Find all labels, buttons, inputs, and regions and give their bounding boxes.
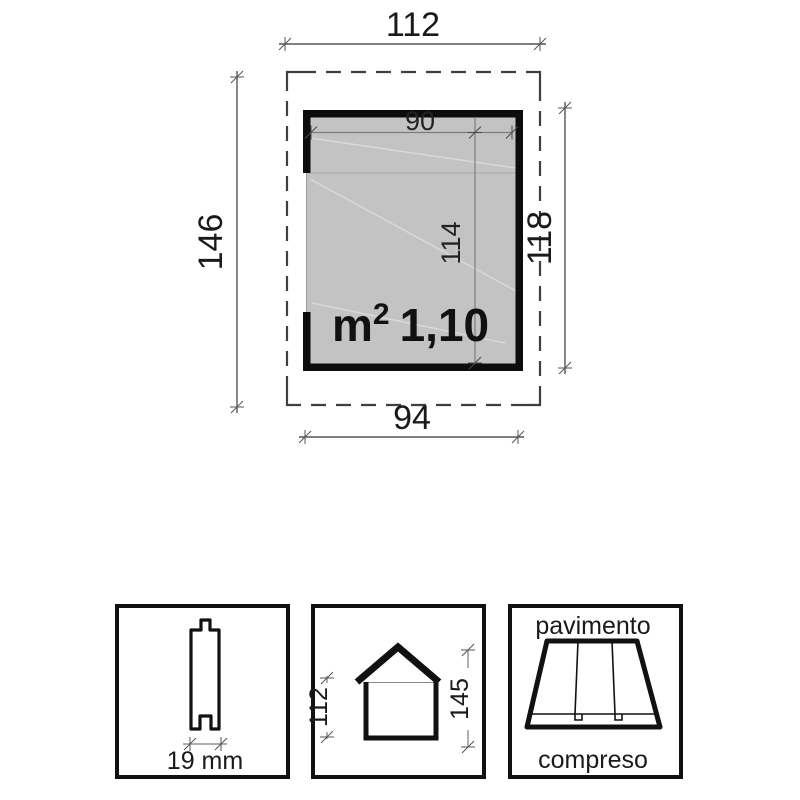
dim-wall-depth: 118 bbox=[521, 102, 572, 374]
plank-profile-icon bbox=[191, 620, 219, 729]
product-technical-drawing: 112 146 118 94 90 bbox=[0, 0, 800, 800]
area-value: 1,10 bbox=[400, 299, 490, 351]
dim-overall-depth: 146 bbox=[192, 71, 244, 413]
floor-label-bottom: compreso bbox=[538, 746, 648, 774]
area-unit: m bbox=[332, 299, 373, 351]
dim-base-width-label: 94 bbox=[393, 399, 431, 437]
dim-wall-depth-label: 118 bbox=[521, 211, 559, 265]
dim-overall-width: 112 bbox=[279, 6, 546, 51]
dim-overall-depth-label: 146 bbox=[192, 214, 230, 271]
wall-left-upper bbox=[303, 110, 311, 173]
area-label: m21,10 bbox=[332, 298, 489, 351]
floor-plan: 112 146 118 94 90 bbox=[192, 6, 572, 444]
detail-box-floor-included: pavimento compreso bbox=[510, 606, 681, 777]
dim-overall-width-label: 112 bbox=[386, 6, 440, 44]
floor-label-top: pavimento bbox=[535, 612, 650, 640]
dim-inner-width-label: 90 bbox=[405, 106, 435, 136]
detail-box-front-elevation: 112 145 bbox=[305, 606, 484, 777]
detail-box-plank-profile: 19 mm bbox=[117, 606, 288, 777]
dim-ridge-height-label: 145 bbox=[446, 678, 474, 720]
dim-inner-depth-label: 114 bbox=[436, 221, 466, 264]
drawing-svg: 112 146 118 94 90 bbox=[0, 0, 800, 800]
dim-plank-thickness-label: 19 mm bbox=[167, 747, 243, 775]
wall-bottom bbox=[303, 364, 523, 372]
wall-left-lower bbox=[303, 312, 311, 371]
dim-eave-height-label: 112 bbox=[305, 687, 333, 727]
floor-planks-icon bbox=[527, 641, 660, 727]
area-exponent: 2 bbox=[373, 298, 390, 331]
